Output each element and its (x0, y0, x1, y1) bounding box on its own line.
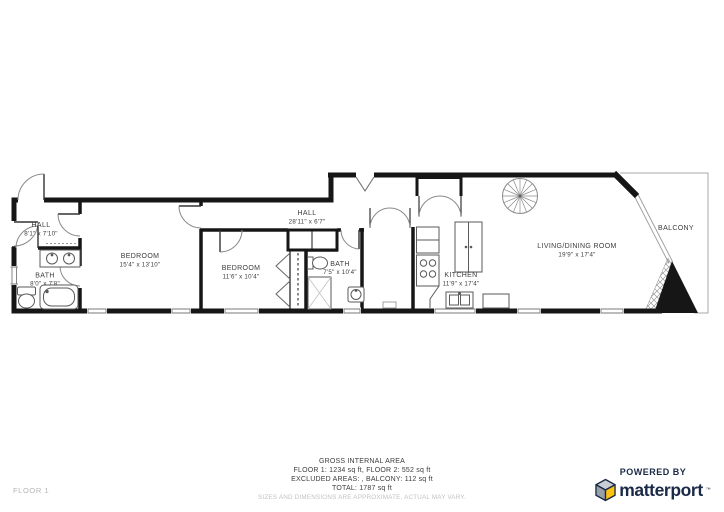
kitchen-island-icon (446, 292, 473, 308)
sink-icon (40, 250, 80, 267)
room-dims-bath1: 8'0" x 7'8" (30, 281, 60, 288)
counter-block (483, 294, 509, 308)
bath2-door (341, 230, 359, 249)
toilet2-icon (308, 257, 328, 269)
stove-icon (417, 255, 440, 286)
corridor-closet (288, 230, 337, 250)
floor-indicator: FLOOR 1 (13, 486, 49, 495)
powered-by-label: POWERED BY (592, 467, 714, 477)
fridge-icon (417, 227, 440, 253)
front-door (18, 174, 44, 200)
room-label-bath2: BATH (330, 261, 350, 268)
room-dims-bath2: 7'5" x 10'4" (323, 269, 357, 276)
entry-door-symbol (356, 177, 374, 191)
room-label-balcony: BALCONY (658, 225, 694, 232)
bifold-doors (276, 253, 290, 307)
room-label-hall2: HALL (298, 210, 317, 217)
shower-icon (308, 277, 331, 309)
bathtub-icon (40, 285, 78, 309)
room-label-bath1: BATH (35, 273, 55, 280)
room-label-bedroom2: BEDROOM (222, 265, 261, 272)
room-dims-bedroom1: 15'4" x 13'10" (120, 262, 161, 269)
room-label-bedroom1: BEDROOM (121, 253, 160, 260)
bedroom1-door (179, 206, 201, 228)
floor-plan-drawing: HALL 8'1" x 7'10" BEDROOM 15'4" x 13'10"… (0, 0, 724, 512)
toilet-icon (18, 287, 36, 308)
floorplan-page: HALL 8'1" x 7'10" BEDROOM 15'4" x 13'10"… (0, 0, 724, 512)
top-closet (417, 178, 461, 197)
stair-step (383, 302, 396, 308)
wardrobe-icon (455, 222, 482, 272)
spiral-staircase-icon (503, 179, 538, 214)
gross-internal-area-title: GROSS INTERNAL AREA (0, 457, 724, 466)
room-dims-living: 19'9" x 17'4" (558, 252, 595, 259)
stairwell-double-door (370, 208, 410, 228)
matterport-wordmark: matterport (619, 480, 703, 501)
room-dims-hall1: 8'1" x 7'10" (24, 231, 58, 238)
room-label-hall1: HALL (32, 222, 51, 229)
fixtures (18, 222, 510, 309)
bedroom1-hall-door (58, 214, 80, 236)
matterport-branding: POWERED BY matterport ™ (592, 467, 714, 502)
closet-double-door (419, 196, 461, 217)
room-label-kitchen: KITCHEN (444, 272, 477, 279)
room-dims-kitchen: 11'9" x 17'4" (443, 281, 480, 288)
matterport-cube-icon (595, 478, 616, 502)
sink2-icon (348, 287, 364, 302)
room-label-living: LIVING/DINING ROOM (537, 243, 616, 250)
trademark-symbol: ™ (706, 487, 711, 493)
bath1-second-door (60, 266, 80, 286)
counter-edge (430, 286, 439, 308)
room-dims-bedroom2: 11'6" x 10'4" (223, 274, 260, 281)
room-dims-hall2: 28'11" x 6'7" (289, 219, 326, 226)
bedroom2-door (220, 230, 242, 252)
